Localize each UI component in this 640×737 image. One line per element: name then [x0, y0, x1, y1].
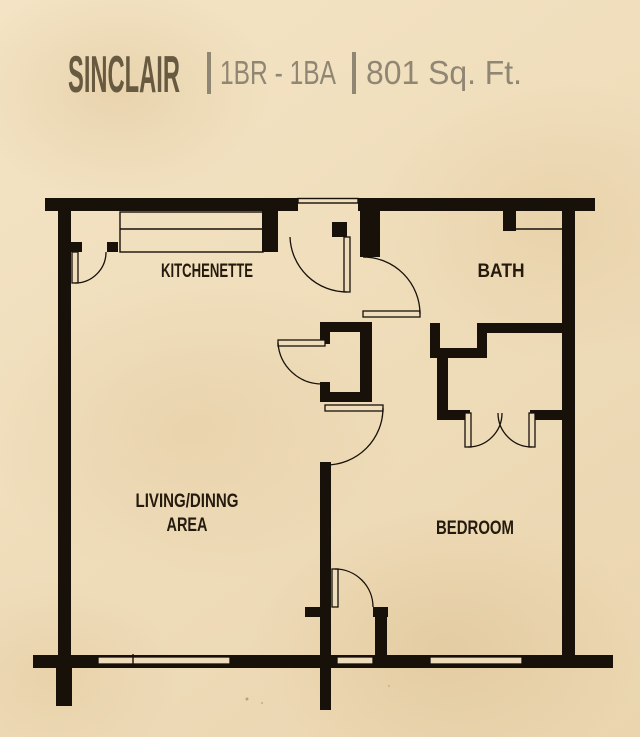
entry-door-swing-arc [290, 237, 347, 292]
room-label-bedroom: BEDROOM [436, 517, 514, 539]
pantry-door-swing-arc [75, 252, 106, 283]
hall-closet-jamb-bottom [320, 382, 330, 402]
pantry-jamb-left [70, 242, 82, 252]
title-separator [352, 52, 356, 94]
hall-closet-door-swing-arc [278, 343, 322, 384]
bedroom-door-swing-arc [335, 569, 373, 607]
area-spec: 801 Sq. Ft. [366, 54, 522, 91]
bed-bath-spec: 1BR - 1BA [220, 54, 336, 91]
bath-door-swing-arc [363, 257, 420, 314]
bedroom-door [332, 569, 373, 607]
bedroom-window [430, 657, 522, 664]
bedroom-door-column [375, 617, 387, 657]
bedroom-closet-top [437, 348, 487, 358]
hall-door-swing-arc [326, 408, 383, 465]
entry-door-leaf [344, 237, 350, 292]
entry-door-jamb [332, 222, 347, 237]
alcove-window [337, 657, 373, 664]
floorplan-drawing: SINCLAIR 1BR - 1BA 801 Sq. Ft. [0, 0, 640, 737]
living-window [98, 657, 230, 664]
wall-living-bedroom-divider [320, 462, 331, 710]
bedroom-closet-door-leaf-right [529, 413, 535, 447]
hall-door [325, 405, 383, 465]
hall-door-leaf [325, 405, 383, 411]
room-label-living-line1: LIVING/DINNG [136, 490, 239, 512]
pantry-door [72, 252, 106, 283]
bath-south-wall [477, 323, 563, 333]
doors [72, 237, 535, 607]
bedroom-closet-door-arc-right [498, 413, 532, 447]
pantry-door-leaf [72, 252, 78, 283]
room-label-living-line2: AREA [167, 514, 208, 536]
plan-header: SINCLAIR 1BR - 1BA 801 Sq. Ft. [68, 46, 522, 104]
bedroom-door-jamb-right [373, 607, 388, 617]
bedroom-door-jamb-left [305, 607, 331, 617]
floorplan-page: SINCLAIR 1BR - 1BA 801 Sq. Ft. [0, 0, 640, 737]
wall-left [58, 198, 71, 668]
hall-closet-door-leaf [278, 340, 325, 346]
bedroom-closet-door-arc-left [468, 413, 502, 447]
wall-top-right [358, 198, 595, 211]
title-separator [207, 52, 211, 94]
bath-south-step [477, 333, 487, 350]
wall-right [562, 211, 575, 659]
room-label-kitchenette: KITCHENETTE [161, 261, 253, 282]
hall-closet-right [360, 322, 372, 402]
entry-door [290, 237, 350, 292]
bath-door [363, 257, 420, 317]
kitchen-counter [120, 212, 263, 252]
wall-kitchen-right [262, 198, 278, 252]
bedroom-closet-bottom-right [530, 410, 575, 420]
pantry-jamb-right [107, 242, 118, 252]
room-label-bath: BATH [478, 261, 525, 282]
bath-niche-stub [503, 211, 516, 231]
wall-top-left [45, 198, 298, 211]
entry-threshold [298, 199, 358, 204]
bedroom-door-leaf [332, 569, 338, 607]
hall-closet-door [278, 340, 325, 384]
bedroom-closet-doors [465, 413, 535, 447]
bath-door-leaf [363, 311, 420, 317]
plan-name: SINCLAIR [68, 46, 180, 104]
wall-bath-left [360, 211, 380, 257]
bedroom-closet-door-leaf-left [465, 413, 471, 447]
